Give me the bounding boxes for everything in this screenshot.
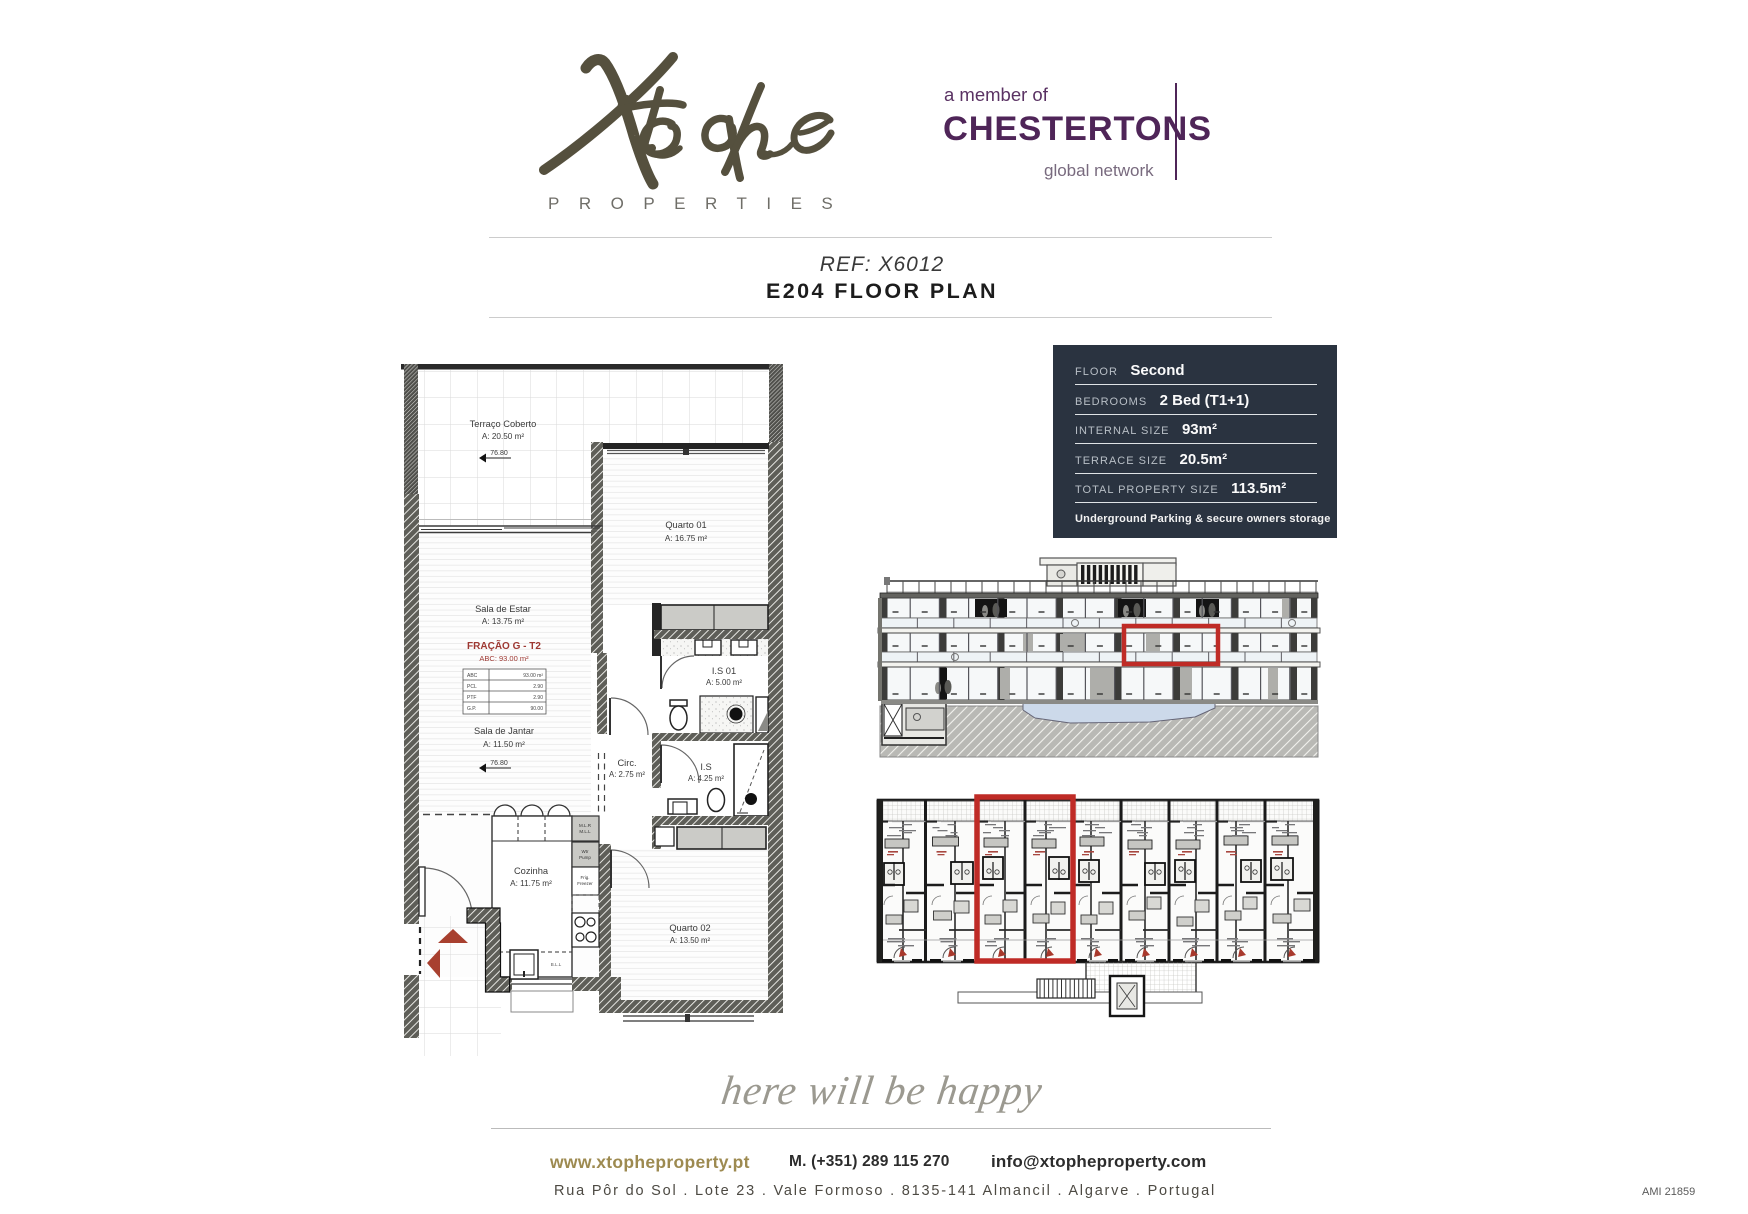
svg-text:76.80: 76.80 [490,450,508,457]
svg-text:A: 16.75 m²: A: 16.75 m² [665,534,708,543]
svg-text:Pump: Pump [579,855,591,860]
svg-text:I.S 01: I.S 01 [712,666,736,676]
svg-text:A: 4.25 m²: A: 4.25 m² [688,774,724,783]
svg-text:ABC: 93.00 m²: ABC: 93.00 m² [479,654,529,663]
svg-text:Quarto 01: Quarto 01 [665,520,706,530]
svg-text:M.L.L: M.L.L [579,829,591,834]
svg-text:I.S: I.S [700,762,711,772]
svg-text:G.P.: G.P. [467,706,476,712]
svg-text:Circ.: Circ. [617,758,636,768]
svg-text:ABC: ABC [467,673,478,679]
svg-text:2.90: 2.90 [533,684,543,690]
svg-text:A: 20.50 m²: A: 20.50 m² [482,432,525,441]
svg-text:A: 2.75 m²: A: 2.75 m² [609,770,645,779]
svg-text:Frig.: Frig. [581,875,590,880]
svg-text:PCL: PCL [467,684,477,690]
svg-text:A: 11.50 m²: A: 11.50 m² [483,740,525,749]
svg-text:2.90: 2.90 [533,695,543,701]
svg-text:Quarto 02: Quarto 02 [669,923,710,933]
svg-text:Terraço Coberto: Terraço Coberto [470,419,537,429]
svg-text:Wtr: Wtr [582,849,589,854]
svg-text:FRAÇÃO G - T2: FRAÇÃO G - T2 [467,639,541,652]
svg-text:Sala de Estar: Sala de Estar [475,604,531,614]
svg-text:76.80: 76.80 [490,760,508,767]
svg-text:A: 5.00 m²: A: 5.00 m² [706,678,742,687]
svg-text:B.L.L: B.L.L [551,962,562,967]
svg-text:Cozinha: Cozinha [514,866,549,876]
svg-text:A: 13.75 m²: A: 13.75 m² [482,617,525,626]
svg-text:A: 13.50 m²: A: 13.50 m² [670,936,711,945]
svg-text:93.00 m²: 93.00 m² [523,673,543,679]
svg-text:90.00: 90.00 [530,706,543,712]
svg-text:M.L.R: M.L.R [579,823,592,828]
svg-text:PTF: PTF [467,695,476,701]
svg-text:A: 11.75 m²: A: 11.75 m² [510,879,552,888]
svg-text:Sala de Jantar: Sala de Jantar [474,726,534,736]
svg-text:Freezer: Freezer [577,881,593,886]
